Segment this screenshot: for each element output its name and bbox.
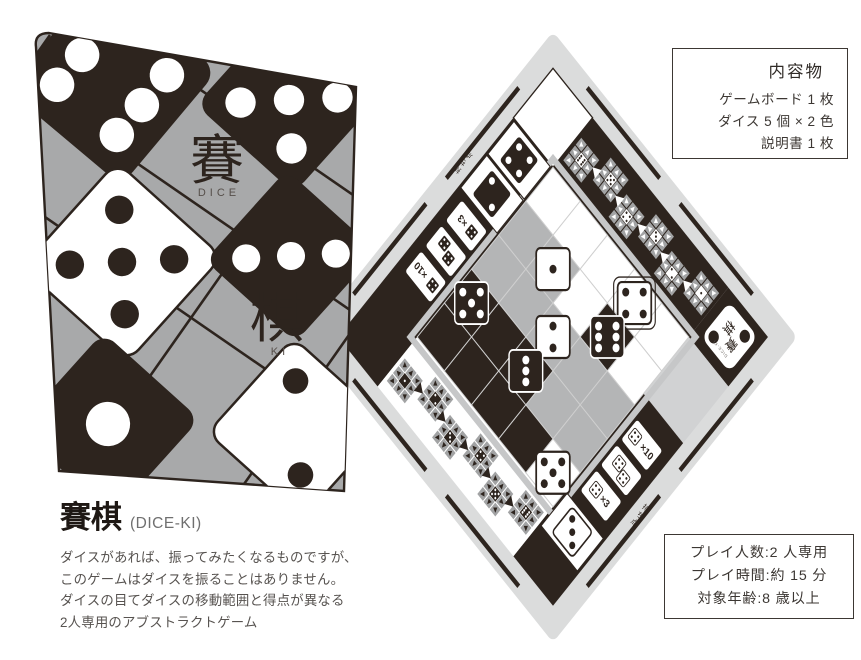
description-line: このゲームはダイスを振ることはありません。 bbox=[60, 569, 390, 591]
page: ×3×10×10×3持ち点持ち点賽棋DICE-KI 賽 DICE 棋 KI 内容… bbox=[0, 0, 861, 660]
box-kanji-dice: 賽 bbox=[190, 131, 244, 191]
box-kanji-ki-sub: KI bbox=[271, 346, 289, 358]
spec-line: 対象年齢:8 歳以上 bbox=[665, 588, 853, 611]
title-block: 賽棋 (DICE-KI) ダイスがあれば、振ってみたくなるものですが、 このゲー… bbox=[60, 492, 390, 633]
description-line: ダイスの目てダイスの移動範囲と得点が異なる bbox=[60, 590, 390, 612]
black-die-6 bbox=[591, 316, 625, 358]
game-subtitle: (DICE-KI) bbox=[130, 515, 202, 533]
spec-box: プレイ人数:2 人専用 プレイ時間:約 15 分 対象年齢:8 歳以上 bbox=[664, 534, 854, 619]
contents-item: ゲームボード 1 枚 bbox=[683, 89, 834, 111]
description-line: 2人専用のアブストラクトゲーム bbox=[60, 612, 390, 634]
spec-line: プレイ人数:2 人専用 bbox=[665, 542, 853, 565]
white-die-5 bbox=[536, 452, 570, 494]
game-title: 賽棋 bbox=[60, 492, 122, 537]
description-line: ダイスがあれば、振ってみたくなるものですが、 bbox=[60, 547, 390, 569]
contents-item: 説明書 1 枚 bbox=[683, 133, 834, 155]
spec-line: プレイ時間:約 15 分 bbox=[665, 565, 853, 588]
box-kanji-dice-sub: DICE bbox=[198, 187, 240, 199]
black-die-3 bbox=[509, 350, 543, 392]
contents-box: 内容物 ゲームボード 1 枚 ダイス 5 個 × 2 色 説明書 1 枚 bbox=[672, 48, 848, 159]
contents-title: 内容物 bbox=[683, 58, 834, 82]
black-die-5 bbox=[455, 282, 489, 324]
contents-item: ダイス 5 個 × 2 色 bbox=[683, 111, 834, 133]
box-kanji-ki: 棋 bbox=[250, 289, 304, 349]
white-die-1 bbox=[536, 248, 570, 290]
